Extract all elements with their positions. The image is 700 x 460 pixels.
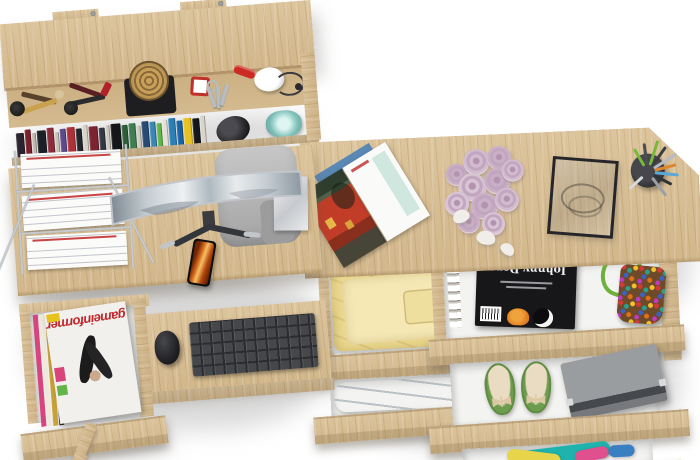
square-glass xyxy=(547,156,619,239)
cover-art-black-figure xyxy=(533,308,554,328)
desk-top-view-scene: Johnny Depp xyxy=(0,0,700,460)
document-heading-rule xyxy=(32,235,116,242)
open-magazine xyxy=(310,149,425,264)
cover-label xyxy=(57,385,68,396)
box-metal-corner xyxy=(658,378,666,386)
shoe-bow xyxy=(526,394,545,405)
document-heading-rule xyxy=(28,193,113,201)
box-metal-corner xyxy=(566,398,574,406)
document-heading-rule xyxy=(26,154,110,160)
left-desk: gameinformer xyxy=(7,134,340,460)
magazine-subtitle-line xyxy=(500,281,552,285)
screw-icon xyxy=(218,1,223,6)
screw-icon xyxy=(90,11,95,16)
teal-glass-bowl xyxy=(265,109,303,139)
black-keyboard xyxy=(189,313,319,377)
cover-figure-head xyxy=(89,370,102,383)
cover-label xyxy=(54,367,66,382)
pens xyxy=(630,153,665,188)
right-desk xyxy=(299,125,700,278)
brush-tip xyxy=(9,101,25,117)
key xyxy=(220,84,230,106)
red-heading xyxy=(351,160,370,173)
rose-bouquet xyxy=(443,145,531,241)
blue-clothes xyxy=(608,444,635,457)
shoe-bow xyxy=(492,395,512,408)
photo-window-light xyxy=(325,217,337,230)
brush-handle-end xyxy=(54,90,64,100)
wireless-mouse xyxy=(153,330,181,366)
cover-art-orange-figure xyxy=(507,308,530,326)
right-drawer-chest: Johnny Depp xyxy=(422,245,695,460)
rose xyxy=(501,159,524,182)
magazine-subtitle-line xyxy=(506,286,546,289)
text-column xyxy=(372,150,420,216)
pen xyxy=(628,176,643,190)
rose xyxy=(463,148,490,175)
photo-window-light xyxy=(345,219,355,229)
rose xyxy=(494,187,519,212)
phone-screen xyxy=(189,240,215,285)
keyboard-tray xyxy=(140,300,332,392)
pen-cup-group xyxy=(621,136,684,199)
lipstick xyxy=(100,81,112,97)
magazine-barcode xyxy=(480,306,502,322)
gameinformer-magazine: gameinformer xyxy=(44,301,142,424)
brush-tip xyxy=(63,101,78,116)
beaded-bag xyxy=(616,264,667,326)
